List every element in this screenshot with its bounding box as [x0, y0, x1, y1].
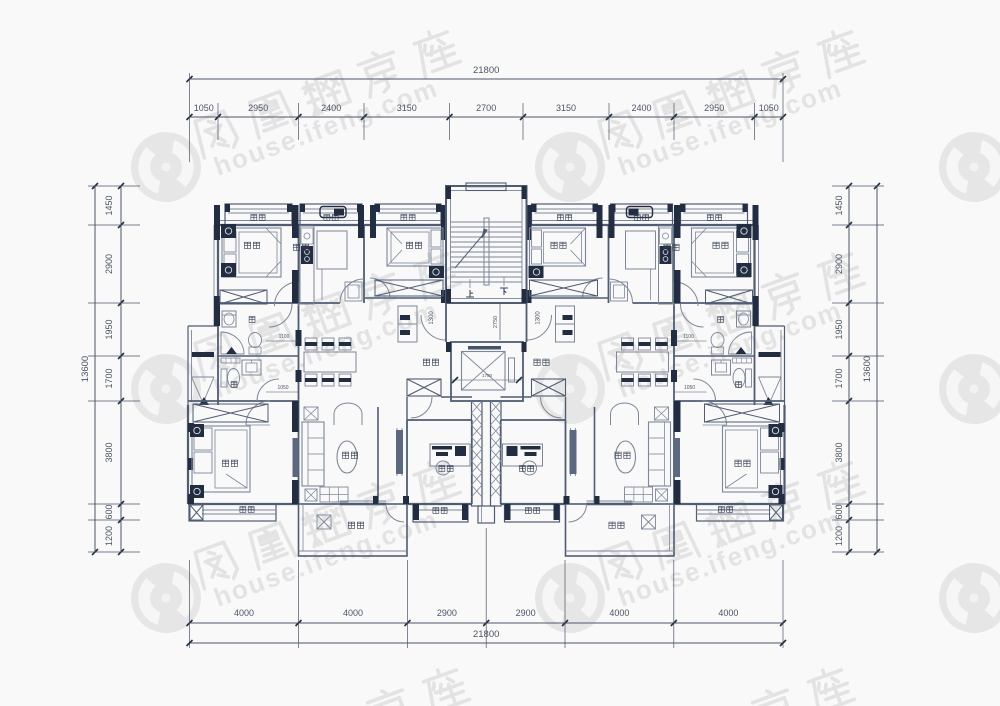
- svg-text:600: 600: [104, 504, 114, 519]
- svg-text:21800: 21800: [473, 65, 499, 76]
- svg-text:4000: 4000: [343, 608, 363, 618]
- svg-text:3800: 3800: [834, 442, 844, 462]
- svg-text:1700: 1700: [834, 368, 844, 388]
- svg-text:1200: 1200: [104, 526, 114, 546]
- svg-text:1300: 1300: [429, 311, 435, 325]
- svg-text:1200: 1200: [834, 526, 844, 546]
- svg-text:1300: 1300: [536, 311, 542, 325]
- svg-text:2700: 2700: [476, 103, 496, 113]
- svg-text:1700: 1700: [104, 368, 114, 388]
- svg-text:13600: 13600: [862, 356, 873, 382]
- svg-text:4000: 4000: [718, 608, 738, 618]
- svg-text:2950: 2950: [704, 103, 724, 113]
- svg-text:1950: 1950: [104, 319, 114, 339]
- svg-text:13600: 13600: [80, 356, 91, 382]
- svg-text:2400: 2400: [631, 103, 651, 113]
- svg-text:1050: 1050: [194, 103, 214, 113]
- svg-text:1450: 1450: [834, 195, 844, 215]
- svg-text:3150: 3150: [556, 103, 576, 113]
- svg-text:4000: 4000: [609, 608, 629, 618]
- svg-text:3150: 3150: [397, 103, 417, 113]
- svg-text:21800: 21800: [473, 629, 499, 640]
- svg-text:1050: 1050: [277, 385, 288, 391]
- svg-text:1950: 1950: [834, 319, 844, 339]
- svg-text:3800: 3800: [104, 442, 114, 462]
- svg-text:2900: 2900: [834, 254, 844, 274]
- svg-text:4000: 4000: [234, 608, 254, 618]
- svg-text:1100: 1100: [279, 334, 290, 340]
- svg-text:600: 600: [834, 504, 844, 519]
- svg-text:2900: 2900: [104, 254, 114, 274]
- svg-text:2900: 2900: [437, 608, 457, 618]
- svg-text:2900: 2900: [516, 608, 536, 618]
- svg-text:2950: 2950: [248, 103, 268, 113]
- svg-text:1450: 1450: [104, 195, 114, 215]
- svg-text:1100: 1100: [683, 334, 694, 340]
- svg-text:2400: 2400: [321, 103, 341, 113]
- svg-text:1700: 1700: [482, 373, 493, 378]
- svg-text:1050: 1050: [684, 385, 695, 391]
- svg-text:1050: 1050: [759, 103, 779, 113]
- svg-text:2750: 2750: [493, 316, 499, 328]
